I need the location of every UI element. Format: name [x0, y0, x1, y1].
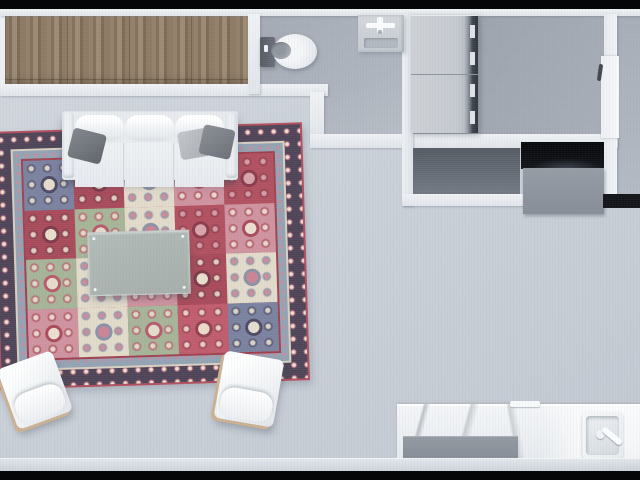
door-handle — [597, 64, 603, 81]
faucet-drain-dot — [378, 30, 382, 34]
door-right-wall — [601, 56, 619, 138]
dark-threshold-strip — [603, 194, 640, 208]
letterbox-bar-top — [0, 0, 640, 9]
rug-tile — [28, 308, 80, 359]
sofa-seat-cushion — [125, 143, 174, 187]
letterbox-bar-bottom — [0, 471, 640, 480]
floorplan-render — [0, 0, 640, 480]
toilet-flush-button — [264, 45, 268, 52]
bathroom-floor-lower — [320, 88, 404, 140]
coffee-table — [87, 230, 191, 297]
sofa-back-cushion — [125, 115, 174, 141]
sofa — [62, 111, 238, 180]
rug-tile — [228, 302, 280, 353]
vanity-basin — [364, 38, 398, 48]
kitchen-counter — [397, 404, 640, 462]
wall-dark-room-bottom — [402, 194, 524, 206]
bathroom-sink-vanity — [358, 15, 404, 52]
closet-wood-doors — [0, 14, 254, 88]
armchair-right — [214, 350, 285, 427]
rug-tile — [26, 258, 78, 309]
rug-tile — [178, 303, 230, 354]
dryer — [411, 74, 478, 133]
wall-top — [0, 9, 640, 16]
toilet-seat-opening — [271, 42, 291, 59]
wall-bottom — [0, 458, 640, 471]
wall-closet-bottom — [0, 84, 328, 96]
washer — [411, 15, 478, 74]
wall-closet-right — [248, 14, 260, 94]
media-console — [523, 168, 604, 214]
cutting-board — [510, 401, 540, 407]
rug-tile — [224, 203, 276, 254]
kitchen-sink — [582, 412, 623, 459]
washer-dryer-stack — [411, 15, 478, 133]
rug-tile — [226, 252, 278, 303]
rug-tile — [128, 305, 180, 356]
rug-tile — [25, 209, 77, 260]
dark-room-floor — [408, 140, 520, 196]
toilet — [260, 33, 318, 71]
throw-pillow — [198, 124, 236, 160]
media-screen — [521, 142, 604, 169]
rug-tile — [78, 306, 130, 357]
